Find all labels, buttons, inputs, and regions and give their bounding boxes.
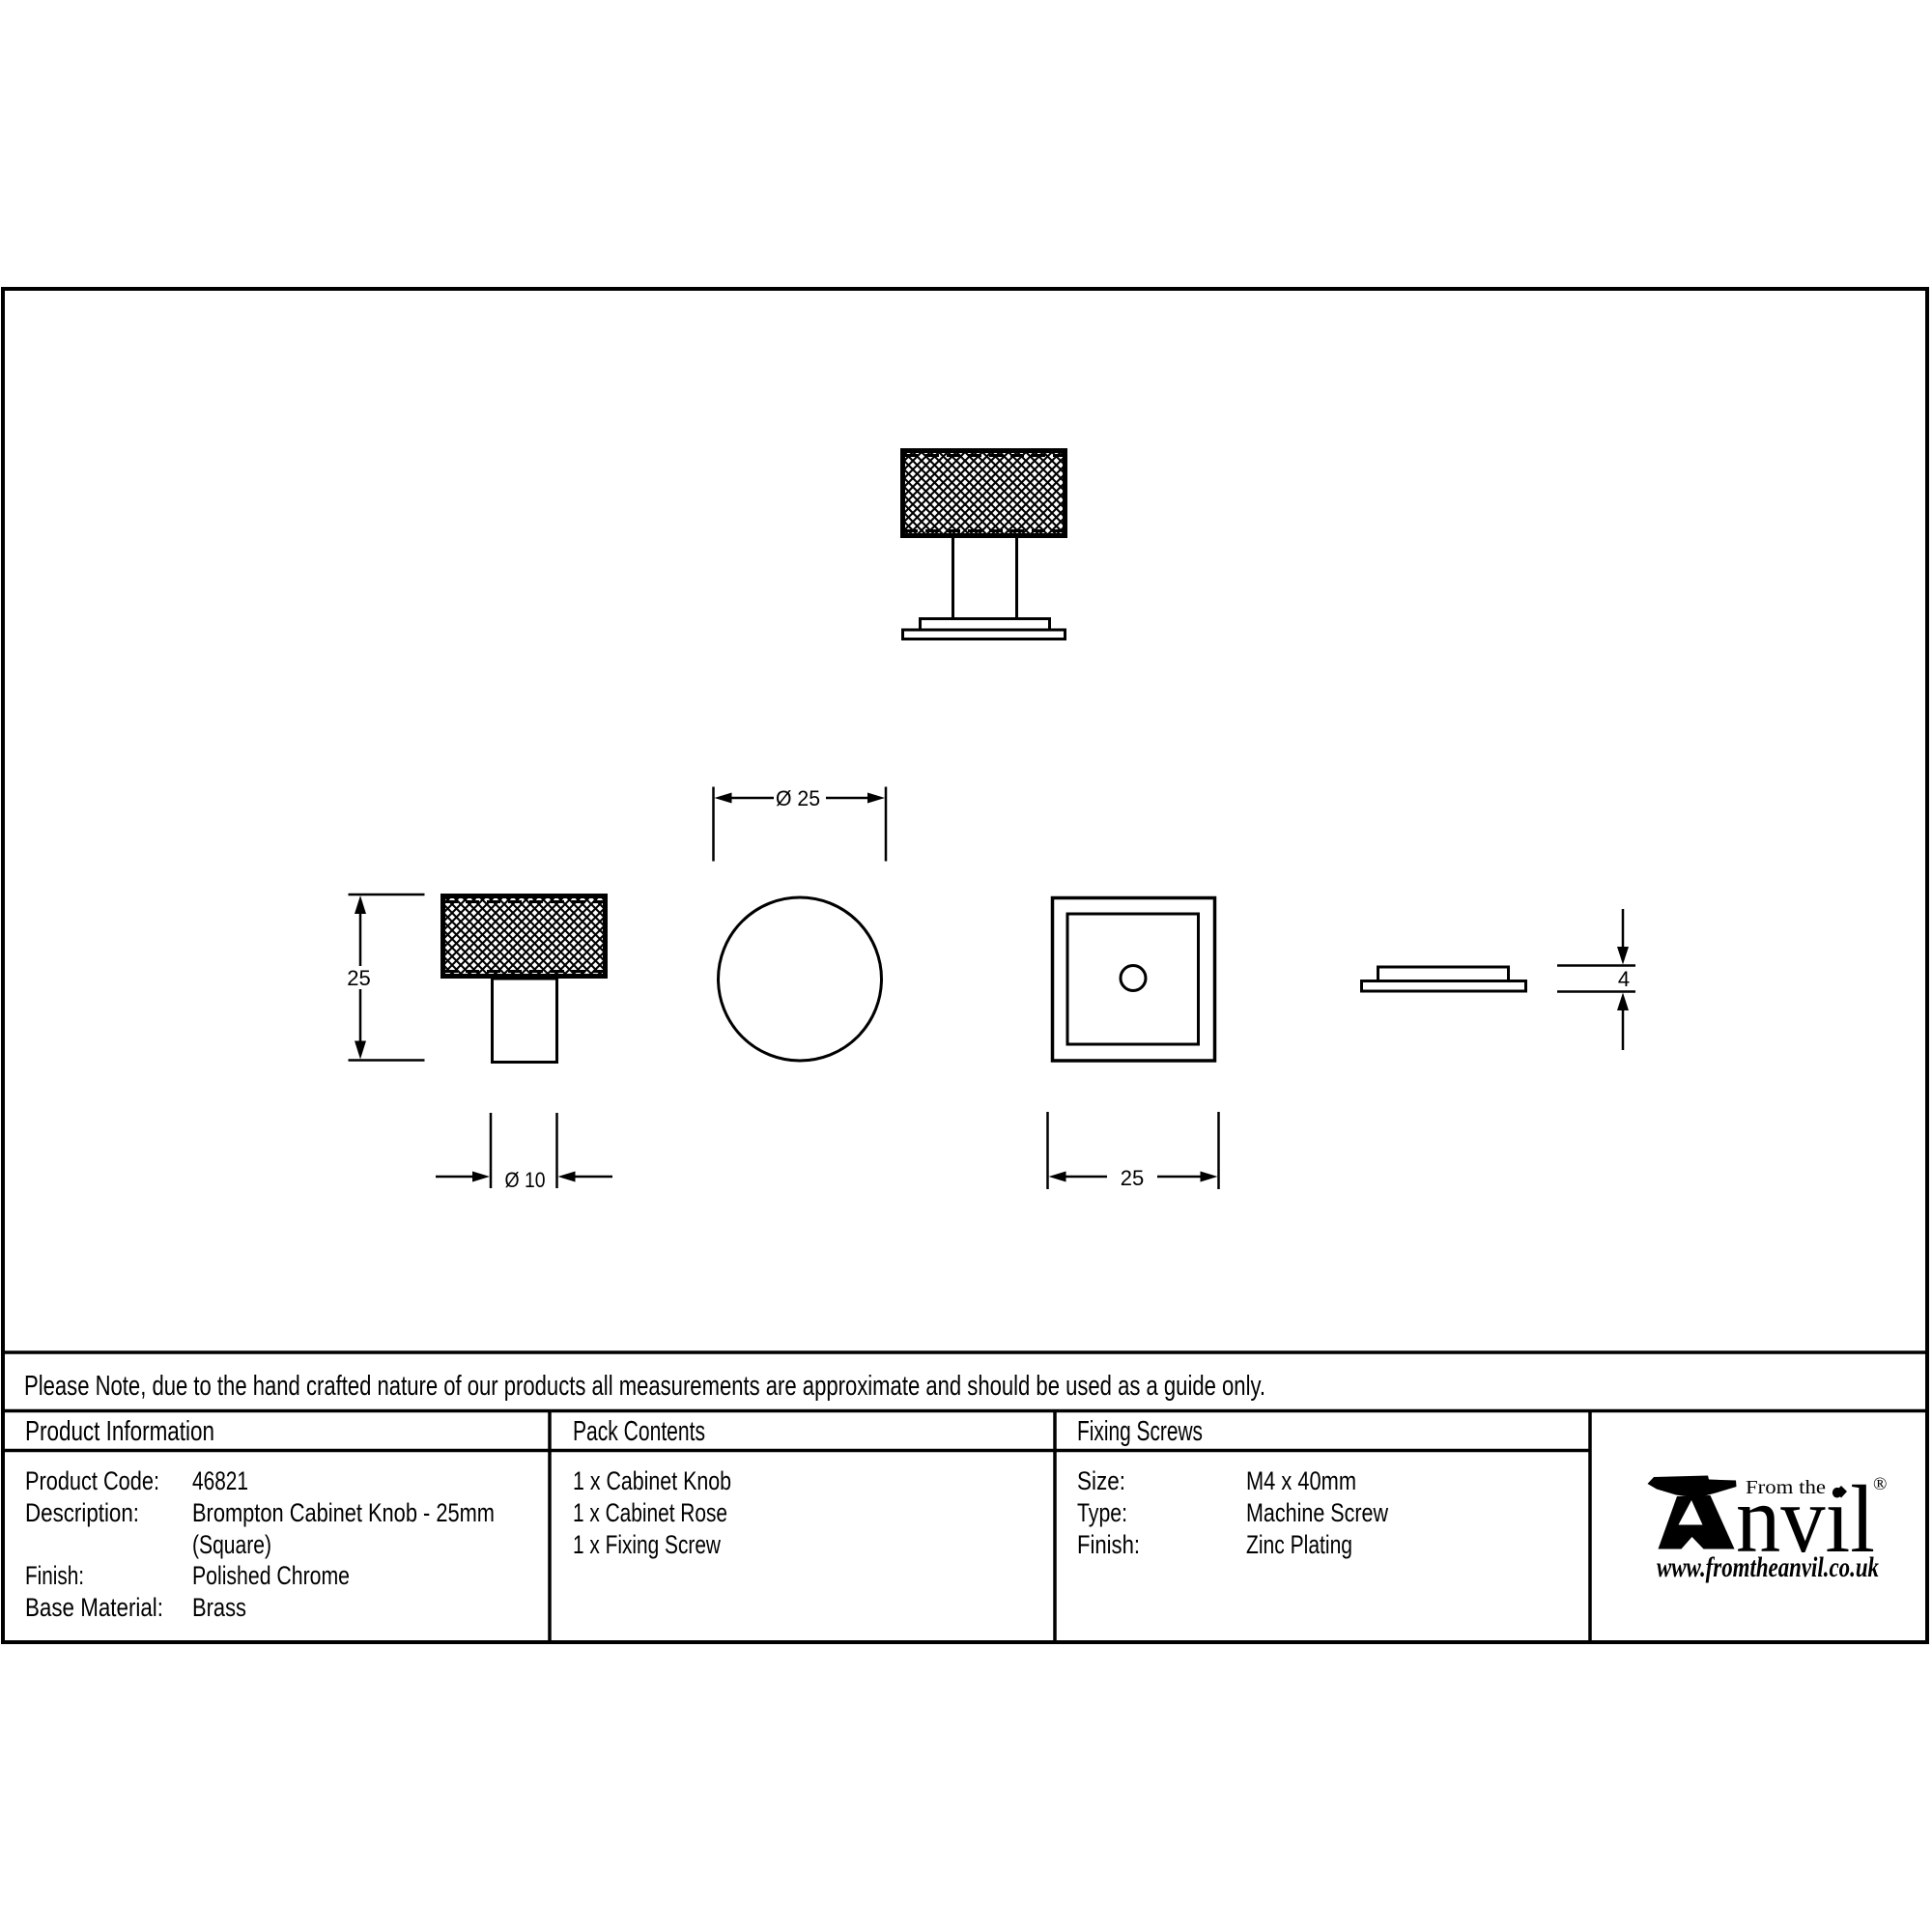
svg-text:www.fromtheanvil.co.uk: www.fromtheanvil.co.uk <box>1657 1551 1879 1583</box>
svg-text:Base Material:: Base Material: <box>25 1593 163 1622</box>
svg-text:Finish:: Finish: <box>1077 1530 1140 1559</box>
svg-text:1 x Fixing Screw: 1 x Fixing Screw <box>573 1530 721 1559</box>
svg-text:Pack Contents: Pack Contents <box>573 1416 705 1447</box>
svg-text:Please Note, due to the hand c: Please Note, due to the hand crafted nat… <box>24 1371 1265 1402</box>
svg-text:Ø 25: Ø 25 <box>776 786 820 810</box>
svg-text:Machine Screw: Machine Screw <box>1246 1498 1388 1527</box>
svg-text:1 x Cabinet Rose: 1 x Cabinet Rose <box>573 1498 727 1527</box>
svg-text:Product Information: Product Information <box>25 1416 214 1447</box>
svg-text:Fixing Screws: Fixing Screws <box>1077 1416 1203 1447</box>
svg-text:46821: 46821 <box>192 1466 248 1495</box>
svg-text:Type:: Type: <box>1077 1498 1127 1527</box>
svg-text:Description:: Description: <box>25 1498 139 1527</box>
svg-text:Brass: Brass <box>192 1593 246 1622</box>
svg-text:1 x Cabinet Knob: 1 x Cabinet Knob <box>573 1466 731 1495</box>
svg-text:®: ® <box>1873 1474 1887 1494</box>
svg-text:M4 x 40mm: M4 x 40mm <box>1246 1466 1356 1495</box>
svg-text:4: 4 <box>1618 967 1630 991</box>
svg-text:Polished Chrome: Polished Chrome <box>192 1561 350 1590</box>
svg-text:Ø 10: Ø 10 <box>505 1168 546 1192</box>
svg-text:Product Code:: Product Code: <box>25 1466 159 1495</box>
svg-text:25: 25 <box>347 966 370 990</box>
svg-text:Finish:: Finish: <box>25 1561 84 1590</box>
svg-text:25: 25 <box>1121 1166 1144 1190</box>
svg-text:Size:: Size: <box>1077 1466 1125 1495</box>
svg-text:Zinc Plating: Zinc Plating <box>1246 1530 1352 1559</box>
svg-text:Brompton Cabinet Knob - 25mm: Brompton Cabinet Knob - 25mm <box>192 1498 495 1527</box>
svg-text:(Square): (Square) <box>192 1530 271 1559</box>
